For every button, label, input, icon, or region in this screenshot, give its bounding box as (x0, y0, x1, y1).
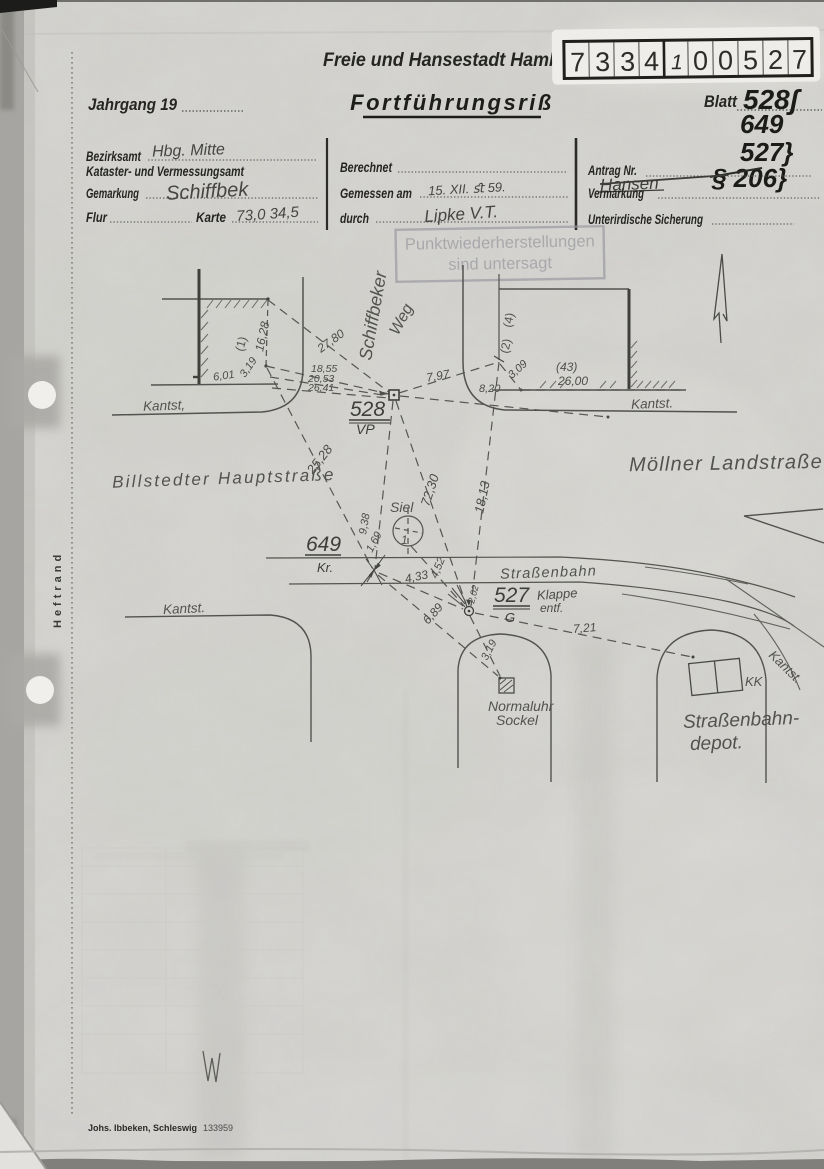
svg-text:KK: KK (745, 674, 764, 689)
svg-text:Gemessen am: Gemessen am (340, 186, 412, 201)
svg-text:649: 649 (740, 109, 784, 139)
svg-text:Heftrand: Heftrand (52, 551, 64, 628)
svg-text:Kataster- und Vermessungsamt: Kataster- und Vermessungsamt (86, 164, 244, 179)
svg-text:Möllner Landstraße: Möllner Landstraße (629, 451, 823, 476)
svg-text:Unterirdische Sicherung: Unterirdische Sicherung (588, 212, 704, 227)
svg-text:3: 3 (595, 47, 610, 77)
svg-text:7: 7 (792, 45, 807, 75)
svg-text:Siel: Siel (390, 499, 414, 515)
svg-text:Kantst.: Kantst. (163, 600, 206, 617)
svg-text:3: 3 (620, 47, 635, 77)
svg-text:0: 0 (718, 45, 733, 75)
svg-text:(2): (2) (497, 337, 514, 354)
svg-text:Fortführungsriß: Fortführungsriß (350, 90, 554, 115)
svg-text:Jahrgang 19: Jahrgang 19 (88, 95, 177, 114)
svg-text:1: 1 (671, 51, 683, 74)
svg-text:5: 5 (743, 45, 758, 75)
svg-text:2: 2 (768, 45, 783, 75)
svg-text:Freie und Hansestadt Hamb: Freie und Hansestadt Hamb (323, 49, 560, 71)
svg-text:649: 649 (306, 533, 341, 556)
svg-text:Sockel: Sockel (496, 712, 539, 728)
svg-text:Johs. Ibbeken, Schleswig: Johs. Ibbeken, Schleswig (88, 1123, 197, 1133)
svg-text:Vermarkung: Vermarkung (588, 186, 645, 201)
svg-text:8,20: 8,20 (479, 383, 501, 395)
svg-text:Bezirksamt: Bezirksamt (86, 149, 141, 164)
svg-text:Kr.: Kr. (317, 560, 333, 575)
svg-text:528: 528 (350, 398, 385, 421)
svg-text:entf.: entf. (540, 601, 563, 615)
svg-text:Berechnet: Berechnet (340, 160, 392, 175)
svg-text:Punktwiederherstellungen: Punktwiederherstellungen (405, 232, 595, 253)
svg-text:(43): (43) (556, 360, 577, 374)
svg-text:durch: durch (340, 211, 369, 226)
svg-text:Gemarkung: Gemarkung (86, 186, 140, 201)
svg-text:7: 7 (570, 47, 585, 77)
svg-text:sind untersagt: sind untersagt (448, 254, 552, 274)
svg-text:Schiffbek: Schiffbek (166, 179, 250, 205)
svg-text:Flur: Flur (86, 210, 108, 225)
svg-text:Kantst,: Kantst, (143, 397, 186, 413)
svg-text:G: G (505, 610, 515, 625)
svg-text:133959: 133959 (203, 1123, 233, 1133)
svg-text:VP: VP (356, 421, 375, 437)
svg-text:Straßenbahn-: Straßenbahn- (683, 708, 800, 733)
svg-text:Karte: Karte (196, 210, 226, 225)
svg-text:(4): (4) (500, 311, 517, 328)
svg-text:1: 1 (401, 533, 408, 547)
svg-text:0: 0 (693, 46, 708, 76)
svg-text:7,21: 7,21 (572, 620, 596, 636)
svg-text:Kantst.: Kantst. (631, 395, 674, 411)
svg-text:Hbg. Mitte: Hbg. Mitte (152, 141, 226, 161)
svg-text:§ 206}: § 206} (711, 163, 787, 193)
svg-text:Straßenbahn: Straßenbahn (500, 563, 598, 582)
svg-text:527: 527 (494, 584, 530, 607)
svg-text:4: 4 (644, 46, 659, 76)
svg-text:Blatt: Blatt (704, 92, 738, 111)
svg-text:depot.: depot. (690, 732, 744, 755)
